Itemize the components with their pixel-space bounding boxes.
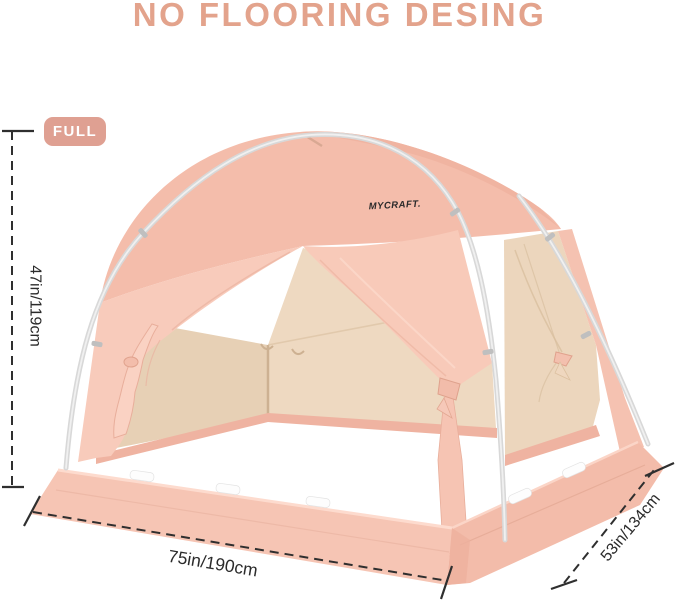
depth-cap-bottom <box>551 580 577 589</box>
left-flap-knot <box>124 357 138 367</box>
tent-diagram: MYCRAFT. 47in/119cm 75in/190cm 53in/134c… <box>0 0 679 605</box>
width-dimension-label: 75in/190cm <box>167 546 260 581</box>
tent-illustration: MYCRAFT. <box>30 131 664 585</box>
product-image: NO FLOORING DESING FULL <box>0 0 679 605</box>
right-side-curtain <box>504 231 600 462</box>
height-dimension-label: 47in/119cm <box>26 265 43 347</box>
